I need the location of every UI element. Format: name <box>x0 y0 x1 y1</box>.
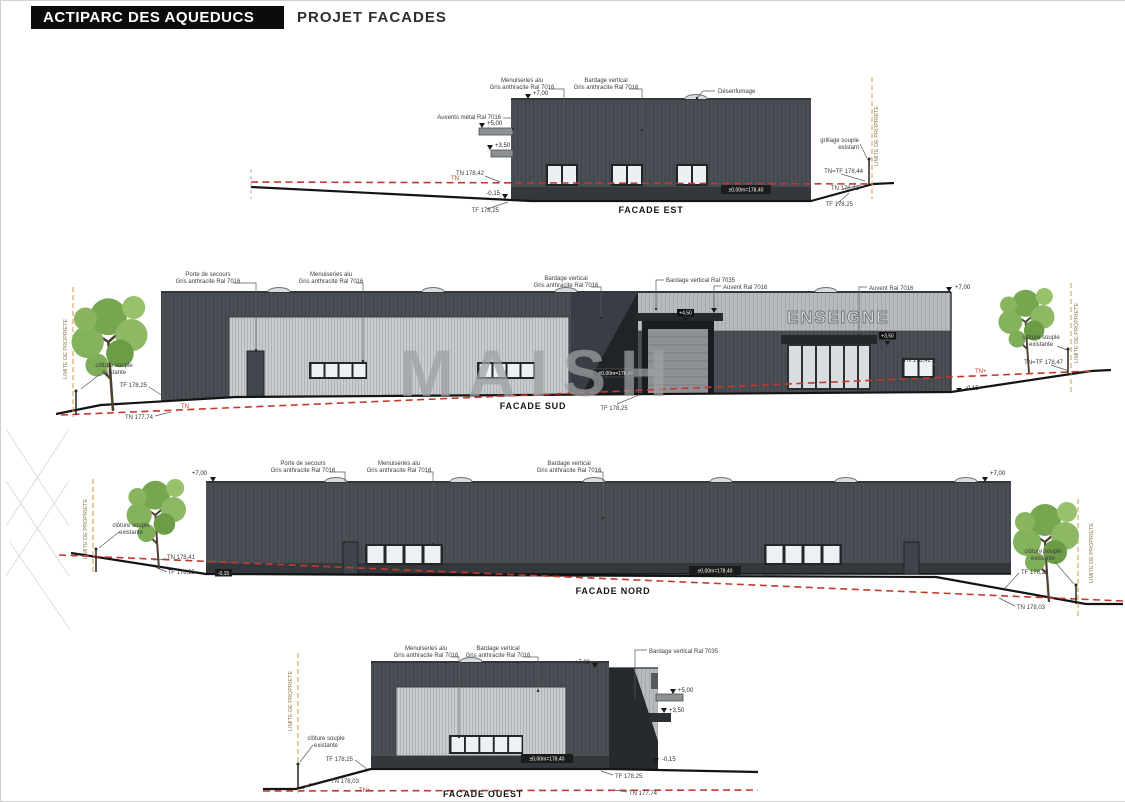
nord-cloture-right-1: clôture souple <box>1024 549 1062 555</box>
est-limite-label: LIMITE DE PROPRIETE <box>874 106 880 167</box>
ouest-annotation-bardage-1: Bardage vertical <box>476 646 519 652</box>
svg-text:-0,15: -0,15 <box>218 571 230 577</box>
est-annotation-menuiseries-1: Menuiseries alu <box>501 78 543 84</box>
nord-tn-right: TN 178,03 <box>1017 605 1046 611</box>
est-grillage-2: existant <box>838 145 859 151</box>
sud-annotation-menuiseries-2: Gris anthracite Ral 7016 <box>299 279 364 285</box>
sud-tn-red-right: TN+ <box>975 369 987 375</box>
ouest-tn-red-label: TN+ <box>359 788 371 794</box>
ouest-tf-right: TF 178,25 <box>615 774 643 780</box>
nord-annotation-bardage-2: Gris anthracite Ral 7016 <box>537 468 602 474</box>
ouest-cloture-1: clôture souple <box>307 736 345 742</box>
ouest-tn-right: TN 177,74 <box>629 791 658 797</box>
ouest-fence-post <box>297 763 300 790</box>
nord-title: FACADE NORD <box>576 586 651 596</box>
nord-level-700-left: +7,00 <box>192 471 208 477</box>
sud-tf-left: TF 178,25 <box>120 383 148 389</box>
sud-tn-right: TN 178,42 <box>903 358 932 364</box>
facade-sud: ENSEIGNE <box>56 272 1111 431</box>
nord-level-badge-m015: -0,15 <box>215 569 232 577</box>
nord-tf-right: TF 178,25 <box>1021 570 1049 576</box>
sud-annotation-porte-2: Gris anthracite Ral 7016 <box>176 279 241 285</box>
sud-cloture-left-2: existante <box>102 370 127 376</box>
sud-tn-tf-right: TN=TF 178,47 <box>1024 360 1064 366</box>
est-level-700: +7,00 <box>533 91 549 97</box>
sud-cloture-left-1: clôture souple <box>95 363 133 369</box>
ouest-vent <box>651 673 658 689</box>
ouest-level-350: +3,50 <box>669 708 685 714</box>
sud-cloture-right-1: clôture souple <box>1022 335 1060 341</box>
svg-text:±0,00m=178,40: ±0,00m=178,40 <box>530 757 565 763</box>
nord-cloture-right-2: existante <box>1031 556 1056 562</box>
nord-cloture-left-2: existante <box>119 530 144 536</box>
ouest-tn-left: TN 178,03 <box>331 779 360 785</box>
sud-tn-left: TN 177,74 <box>125 415 154 421</box>
sud-annotation-porte-1: Porte de secours <box>185 272 230 278</box>
ouest-annotation-bardage-2: Gris anthracite Ral 7016 <box>466 653 531 659</box>
svg-text:±0,00m=178,40: ±0,00m=178,40 <box>698 569 733 575</box>
sud-annotation-bardage7035: Bardage vertical Ral 7035 <box>666 278 736 284</box>
nord-fence-post-left <box>95 548 98 573</box>
sud-light-panel <box>229 317 569 398</box>
nord-building <box>206 482 1011 574</box>
background-plan-lines <box>6 429 71 631</box>
ouest-level-500: +5,00 <box>678 688 694 694</box>
sud-fence-post-right <box>1067 348 1070 374</box>
sud-window-strip <box>309 362 367 379</box>
ouest-title: FACADE OUEST <box>443 789 523 799</box>
nord-door-left <box>343 542 358 574</box>
nord-skylight-dome <box>450 478 472 483</box>
nord-skylight-dome <box>325 478 347 483</box>
nord-window-strip <box>365 544 443 565</box>
est-level-m015: -0,15 <box>486 191 500 197</box>
nord-cloture-left-1: clôture souple <box>112 523 150 529</box>
nord-limite-right-label: LIMITE DE PROPRIETE <box>1089 523 1095 584</box>
sud-annotation-menuiseries-1: Menuiseries alu <box>310 272 352 278</box>
sud-tf-bottom: TF 178,25 <box>600 406 628 412</box>
ouest-tf-left: TF 178,25 <box>326 757 354 763</box>
nord-annotation-porte-1: Porte de secours <box>280 461 325 467</box>
sud-annotation-auvent-right: Auvent Ral 7016 <box>869 286 914 292</box>
est-tf-left: TF 178,25 <box>472 208 500 214</box>
sud-annotation-bardage-2: Gris anthracite Ral 7016 <box>534 283 599 289</box>
est-annotation-desenfumage: Désenfumage <box>718 89 756 95</box>
sud-entrance-canopy <box>781 335 877 344</box>
nord-annotation-menuiseries-1: Menuiseries alu <box>378 461 420 467</box>
est-fence-post <box>868 158 871 186</box>
facades-drawing: Menuiseries alu Gris anthracite Ral 7016… <box>1 1 1125 801</box>
svg-text:+3,50: +3,50 <box>881 334 894 340</box>
est-level-500: +5,00 <box>487 121 503 127</box>
nord-skylight-dome <box>583 478 605 483</box>
sud-skylight-dome <box>268 288 290 293</box>
est-annotation-bardage-2: Gris anthracite Ral 7016 <box>574 85 639 91</box>
sud-tree-left <box>72 296 148 411</box>
sud-cloture-right-2: existante <box>1029 342 1054 348</box>
sud-window-strip <box>477 362 535 379</box>
nord-skylight-dome <box>710 478 732 483</box>
nord-annotation-porte-2: Gris anthracite Ral 7016 <box>271 468 336 474</box>
ouest-level-700: +7,00 <box>575 660 591 666</box>
sud-tn-red-left: TN <box>181 404 189 410</box>
est-window <box>611 164 643 186</box>
est-awning-upper <box>479 128 513 135</box>
est-level-badge: ±0,00m=178,40 <box>721 185 771 194</box>
facade-ouest: Menuiseries alu Gris anthracite Ral 7016… <box>263 646 758 799</box>
ouest-awning-upper <box>656 694 683 701</box>
sud-limite-left-label: LIMITE DE PROPRIETE <box>63 319 69 380</box>
nord-tn-left: TN 178,41 <box>167 555 196 561</box>
nord-level-700-right: +7,00 <box>990 471 1006 477</box>
ouest-annotation-bardage7035: Bardage vertical Ral 7035 <box>649 649 719 655</box>
drawing-sheet: ACTIPARC DES AQUEDUCS PROJET FACADES <box>0 0 1125 802</box>
sud-annotation-bardage-1: Bardage vertical <box>544 276 587 282</box>
est-level-350: +3,50 <box>495 143 511 149</box>
svg-text:±0,00m=178,40: ±0,00m=178,40 <box>729 188 764 194</box>
est-grillage-1: grillage souple <box>820 138 859 144</box>
nord-annotation-menuiseries-2: Gris anthracite Ral 7016 <box>367 468 432 474</box>
est-tn-left: TN 178,42 <box>456 171 485 177</box>
ouest-window-band <box>449 735 523 754</box>
est-tn-tf-right: TN=TF 178,44 <box>824 169 864 175</box>
nord-skylight-dome <box>955 478 977 483</box>
sud-emergency-door <box>247 351 264 398</box>
nord-limite-left-label: LIMITE DE PROPRIETE <box>83 499 89 560</box>
nord-door-right <box>904 542 919 574</box>
ouest-annotation-menuiseries-1: Menuiseries alu <box>405 646 447 652</box>
ouest-cloture-2: existante <box>314 743 339 749</box>
sud-enseigne-sign: ENSEIGNE <box>787 307 889 327</box>
facade-nord: Porte de secours Gris anthracite Ral 701… <box>59 461 1123 619</box>
sud-annotation-auvent-mid: Auvent Ral 7016 <box>723 285 768 291</box>
ouest-awning-lower <box>649 713 671 722</box>
sud-sectional-door <box>642 321 714 398</box>
ouest-plinth <box>371 756 609 769</box>
ouest-annotation-menuiseries-2: Gris anthracite Ral 7016 <box>394 653 459 659</box>
nord-plinth <box>206 563 1011 574</box>
sud-level-700: +7,00 <box>955 285 971 291</box>
est-tn-right: TN 178,41 <box>831 186 860 192</box>
est-tf-right: TF 178,25 <box>826 202 854 208</box>
facade-est: Menuiseries alu Gris anthracite Ral 7016… <box>251 77 894 215</box>
sud-level-badge: ±0,00m=178,40 <box>593 369 639 377</box>
nord-tf-left: TF 178,25 <box>168 570 196 576</box>
sud-limite-right-label: LIMITE DE PROPRIETE <box>1074 303 1080 364</box>
sud-title: FACADE SUD <box>500 401 567 411</box>
ouest-level-badge: ±0,00m=178,40 <box>521 754 573 763</box>
nord-annotation-bardage-1: Bardage vertical <box>547 461 590 467</box>
nord-level-badge: ±0,00m=178,40 <box>689 566 741 575</box>
nord-window-strip <box>764 544 842 565</box>
svg-text:+4,50: +4,50 <box>679 311 692 317</box>
nord-skylight-dome <box>835 478 857 483</box>
svg-text:±0,00m=178,40: ±0,00m=178,40 <box>599 371 634 377</box>
sud-level-m015: -0,15 <box>965 386 979 392</box>
est-awning-lower <box>491 150 513 157</box>
ouest-level-m015: -0,15 <box>662 757 676 763</box>
sud-skylight-dome <box>422 288 444 293</box>
est-title: FACADE EST <box>618 205 683 215</box>
sud-skylight-dome <box>815 288 837 293</box>
ouest-limite-label: LIMITE DE PROPRIETE <box>288 671 294 732</box>
est-annotation-bardage-1: Bardage vertical <box>584 78 627 84</box>
